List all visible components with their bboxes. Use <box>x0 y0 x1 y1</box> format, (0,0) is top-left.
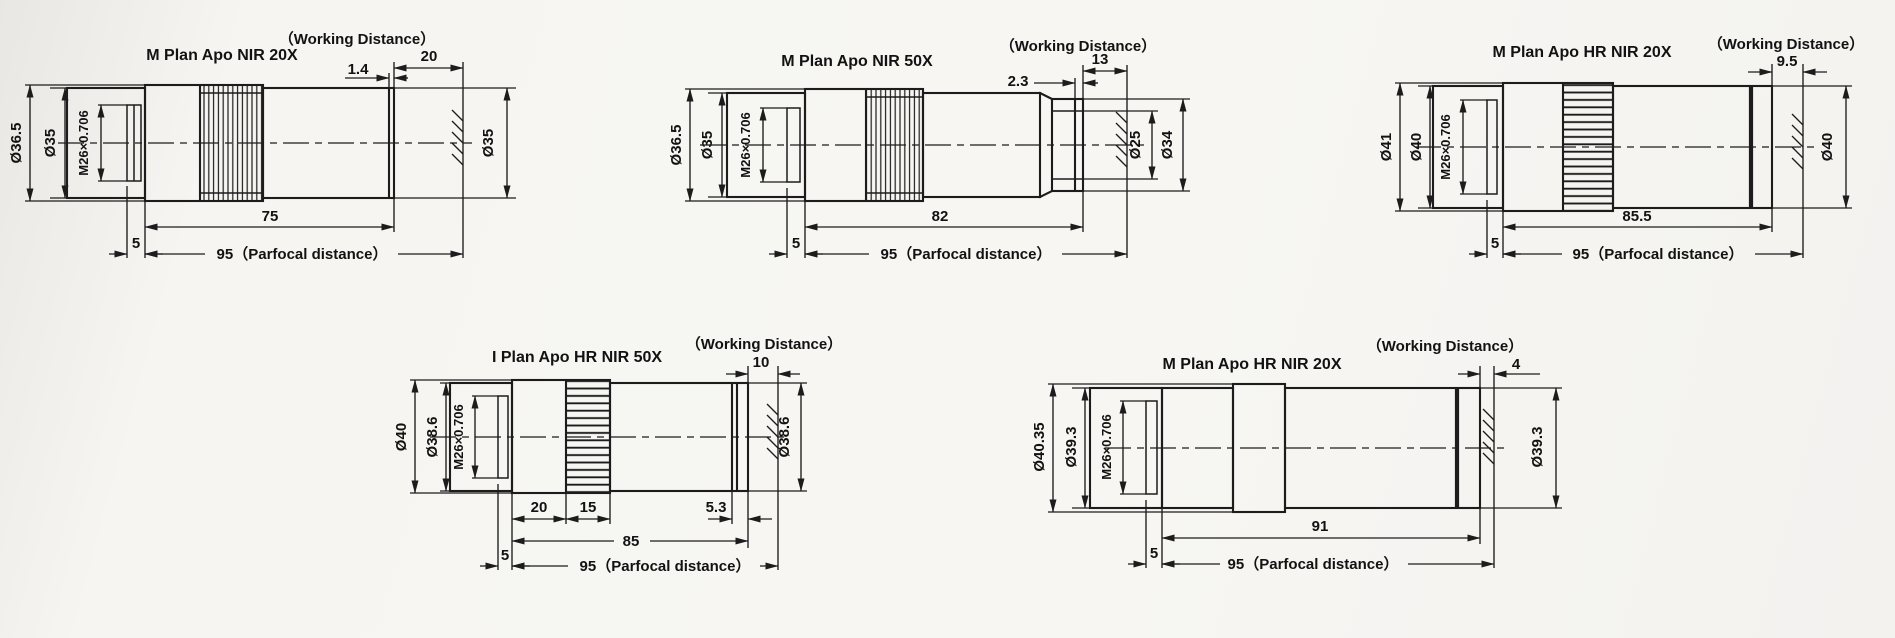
objective-3-body-length: 85.5 <box>1622 208 1651 225</box>
objective-5-dia-outer: Ø40.35 <box>1031 422 1048 471</box>
objective-3-dia-outer: Ø41 <box>1378 133 1395 161</box>
objective-4-title: I Plan Apo HR NIR 50X <box>492 349 662 366</box>
objective-4-working-distance-label: （Working Distance） <box>686 335 842 353</box>
objective-2-dia-front-inner: Ø25 <box>1127 131 1144 159</box>
objective-5-body-length: 91 <box>1312 518 1329 535</box>
objective-4-wd-value: 10 <box>753 354 770 371</box>
objective-1-parfocal: 95（Parfocal distance） <box>217 245 388 263</box>
objective-drawing-2: M Plan Apo NIR 50X （Working Distance） 13… <box>668 37 1190 263</box>
objective-3-dia-front: Ø40 <box>1819 133 1836 161</box>
objective-5-dia-front: Ø39.3 <box>1529 427 1546 468</box>
objective-1-working-distance-label: （Working Distance） <box>279 30 435 48</box>
objective-1-dia-mount: Ø35 <box>42 129 59 157</box>
objective-5-dia-mount: Ø39.3 <box>1063 427 1080 468</box>
objective-3-wd-value: 9.5 <box>1777 53 1798 70</box>
objective-drawing-3: M Plan Apo HR NIR 20X （Working Distance）… <box>1378 35 1864 263</box>
objective-3-working-distance-label: （Working Distance） <box>1708 35 1864 53</box>
objective-4-tip-dim: 5.3 <box>706 499 727 516</box>
objective-4-seg-b: 15 <box>580 499 597 516</box>
objective-2-dia-front-outer: Ø34 <box>1159 130 1176 159</box>
objective-4-parfocal: 95（Parfocal distance） <box>580 557 751 575</box>
objective-5-thread: M26×0.706 <box>1099 414 1114 479</box>
objective-5-thread-length: 5 <box>1150 545 1158 562</box>
hatch-marks <box>452 110 463 165</box>
hatch-marks <box>1116 112 1127 167</box>
objective-2-body-length: 82 <box>932 208 949 225</box>
objective-2-parfocal: 95（Parfocal distance） <box>881 245 1052 263</box>
objective-3-thread-length: 5 <box>1491 235 1499 252</box>
objective-5-parfocal: 95（Parfocal distance） <box>1228 555 1399 573</box>
objective-2-thread-length: 5 <box>792 235 800 252</box>
objective-4-dia-outer: Ø40 <box>393 423 410 451</box>
objective-1-body-length: 75 <box>262 208 279 225</box>
objective-2-title: M Plan Apo NIR 50X <box>781 53 933 70</box>
objective-1-title: M Plan Apo NIR 20X <box>146 47 298 64</box>
objective-3-title: M Plan Apo HR NIR 20X <box>1493 44 1672 61</box>
objective-3-parfocal: 95（Parfocal distance） <box>1573 245 1744 263</box>
objective-1-dia-outer: Ø36.5 <box>8 123 25 164</box>
objective-drawing-4: I Plan Apo HR NIR 50X （Working Distance）… <box>393 335 842 575</box>
objective-4-thread-length: 5 <box>501 547 509 564</box>
objective-2-wd-value: 13 <box>1092 51 1109 68</box>
objective-4-body-length: 85 <box>623 533 640 550</box>
objective-5-wd-value: 4 <box>1512 356 1521 373</box>
objective-4-seg-a: 20 <box>531 499 548 516</box>
front-dia-extension <box>1480 388 1562 508</box>
hatch-marks <box>1792 114 1803 169</box>
objective-4-dia-front: Ø38.6 <box>776 417 793 458</box>
objective-1-thread-length: 5 <box>132 235 140 252</box>
objective-2-working-distance-label: （Working Distance） <box>1000 37 1156 55</box>
wd-extension <box>1075 65 1083 99</box>
objective-2-dia-outer: Ø36.5 <box>668 125 685 166</box>
objective-2-tip-dim: 2.3 <box>1008 73 1029 90</box>
objective-dimension-drawings: M Plan Apo NIR 20X （Working Distance） 20… <box>0 0 1895 638</box>
hatch-marks <box>1483 409 1494 464</box>
wd-extension <box>389 62 394 88</box>
objective-1-wd-value: 20 <box>421 48 438 65</box>
objective-1-tip-dim: 1.4 <box>348 61 370 78</box>
objective-5-title: M Plan Apo HR NIR 20X <box>1163 356 1342 373</box>
objective-drawing-1: M Plan Apo NIR 20X （Working Distance） 20… <box>8 30 516 263</box>
objective-5-working-distance-label: （Working Distance） <box>1367 337 1523 355</box>
objective-drawing-5: M Plan Apo HR NIR 20X （Working Distance）… <box>1031 337 1562 573</box>
objective-1-dia-front: Ø35 <box>480 129 497 157</box>
